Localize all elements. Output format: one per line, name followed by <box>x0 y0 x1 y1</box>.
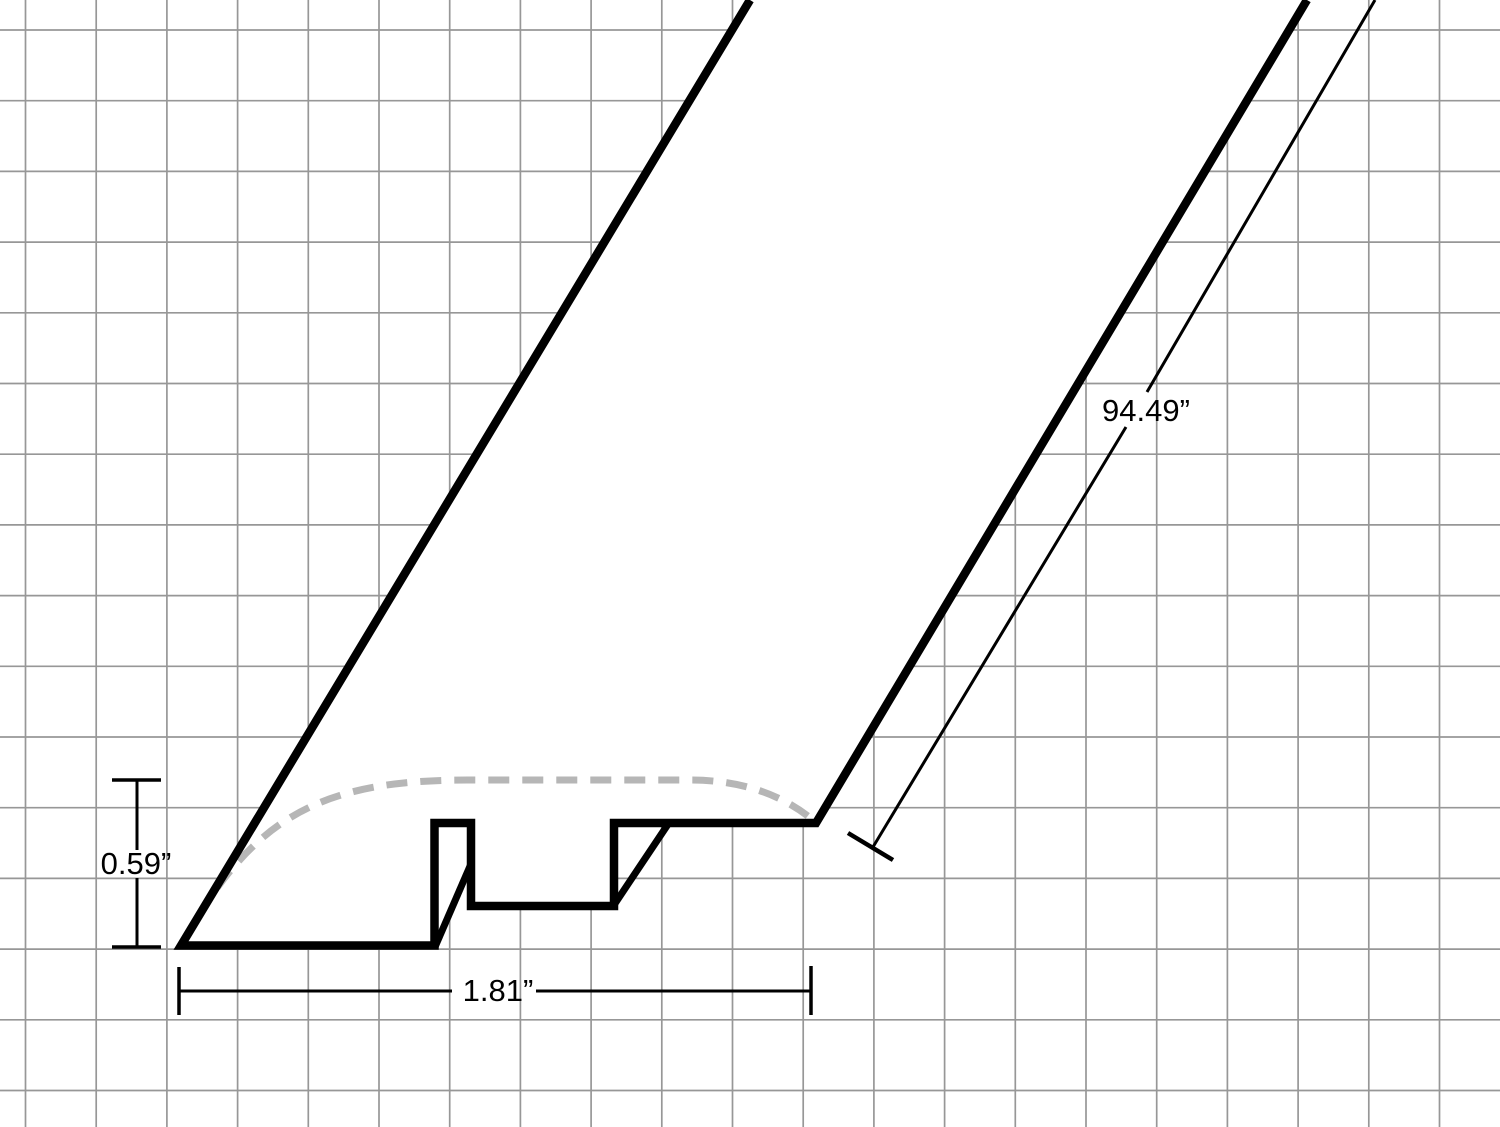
width-dimension-label: 1.81” <box>463 973 534 1008</box>
technical-diagram: 0.59” 1.81” 94.49” <box>0 0 1500 1127</box>
drawing-canvas: 0.59” 1.81” 94.49” <box>0 0 1500 1127</box>
height-dimension-label: 0.59” <box>101 846 172 881</box>
length-dimension-label: 94.49” <box>1102 393 1190 428</box>
